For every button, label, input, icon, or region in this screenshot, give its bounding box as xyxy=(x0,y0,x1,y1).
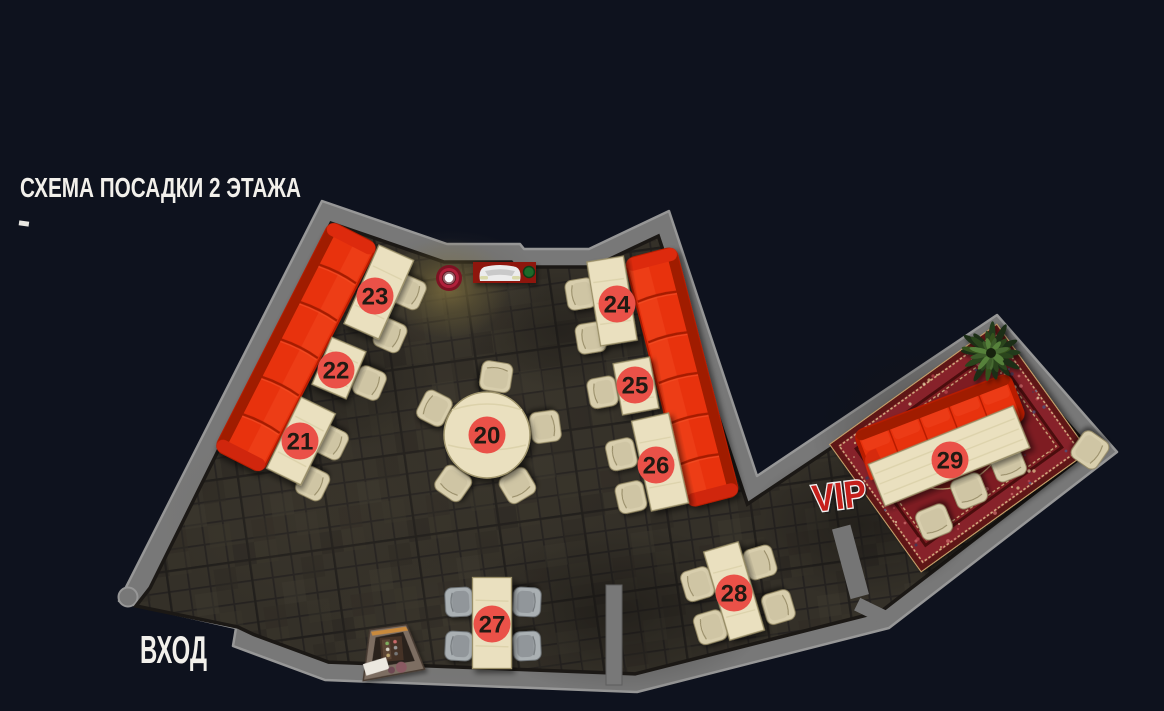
svg-text:ВХОД: ВХОД xyxy=(140,629,207,672)
svg-text:26: 26 xyxy=(643,453,670,480)
svg-text:29: 29 xyxy=(937,448,964,475)
svg-text:25: 25 xyxy=(622,373,649,400)
svg-text:21: 21 xyxy=(287,429,314,456)
svg-text:27: 27 xyxy=(479,612,506,639)
svg-text:VIP: VIP xyxy=(810,473,869,521)
svg-text:22: 22 xyxy=(323,358,350,385)
svg-text:20: 20 xyxy=(474,423,501,450)
svg-text:28: 28 xyxy=(721,581,748,608)
svg-text:24: 24 xyxy=(604,292,631,319)
svg-text:23: 23 xyxy=(362,284,389,311)
svg-text:СХЕМА ПОСАДКИ 2 ЭТАЖА: СХЕМА ПОСАДКИ 2 ЭТАЖА xyxy=(20,172,301,203)
